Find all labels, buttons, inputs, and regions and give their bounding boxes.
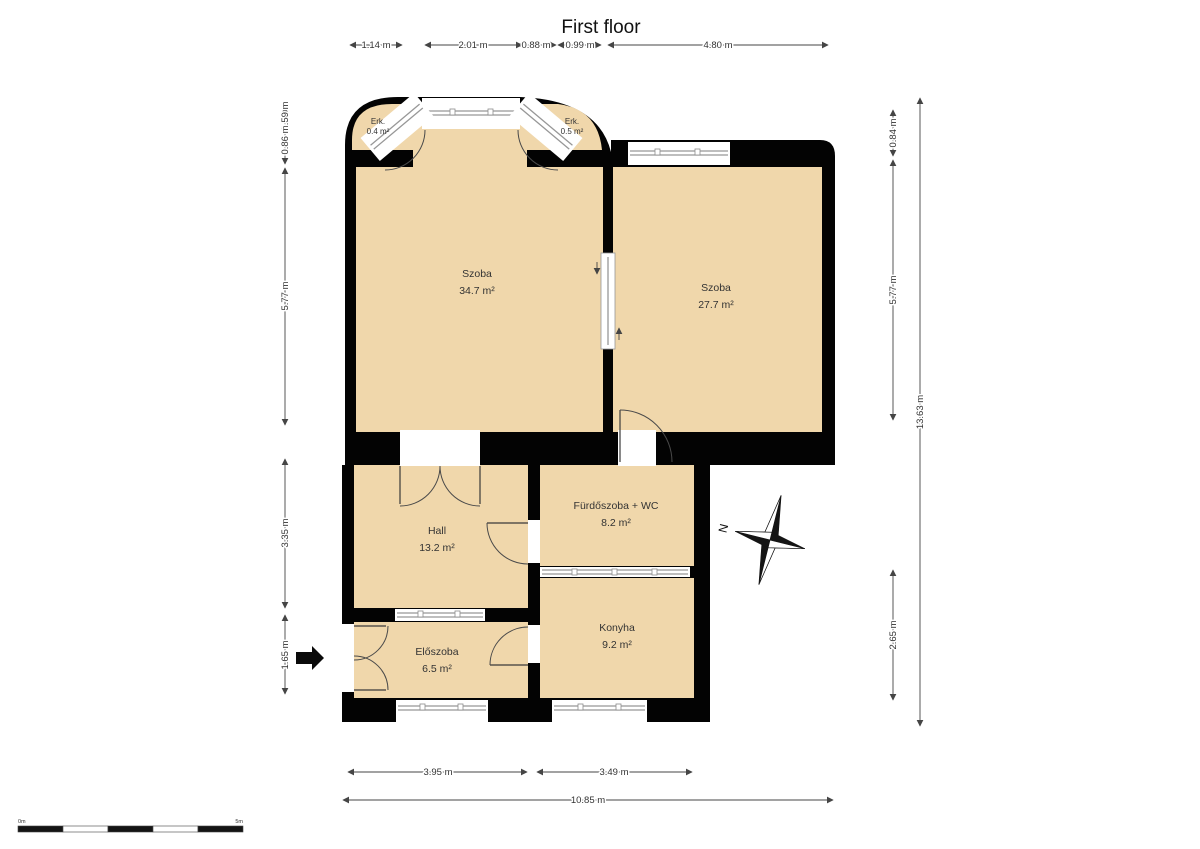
room-floor-szoba1-top (413, 128, 527, 173)
dim-bottom-2: 3.49 m (599, 767, 628, 778)
room-floor-bathroom (540, 465, 694, 566)
dimensions-right: 0.84 m 5.77 m 2.65 m 13.63 m (888, 98, 926, 726)
dim-bottom-total: 10.85 m (571, 795, 605, 806)
room-floor-kitchen (540, 578, 694, 698)
window-szoba2-top (628, 142, 730, 165)
dim-top-1: 1.14 m (361, 40, 390, 51)
entrance-arrow-icon (296, 646, 324, 670)
window-kitchen-bottom (552, 700, 647, 722)
dim-left-2: 0.86 m (280, 125, 291, 154)
door-hall-bathroom (528, 520, 540, 563)
dimensions-left: 0.59 m 0.86 m 5.77 m 3.35 m 1.65 m (280, 101, 291, 694)
dim-top-4: 0.99 m (565, 40, 594, 51)
dim-left-3: 5.77 m (280, 281, 291, 310)
room-area-balcony2: 0.5 m² (561, 127, 584, 136)
compass-north-label: N (716, 522, 732, 534)
dim-right-2: 5.77 m (888, 275, 899, 304)
dim-left-5: 1.65 m (280, 640, 291, 669)
room-name-kitchen: Konyha (599, 622, 635, 634)
dim-right-3: 2.65 m (888, 620, 899, 649)
dim-right-1: 0.84 m (888, 118, 899, 147)
entrance-door (342, 624, 354, 692)
room-name-entry: Előszoba (415, 646, 458, 658)
dim-top-3: 0.88 m (521, 40, 550, 51)
door-entry-kitchen (528, 625, 540, 663)
room-name-szoba1: Szoba (462, 268, 492, 280)
floor-plan: First floor (0, 0, 1200, 849)
room-area-hall: 13.2 m² (419, 542, 455, 554)
dimensions-top: 1.14 m 2.01 m 0.88 m 0.99 m 4.80 m (350, 40, 828, 51)
dim-left-4: 3.35 m (280, 518, 291, 547)
dim-top-2: 2.01 m (458, 40, 487, 51)
scale-end-label: 5m (235, 819, 243, 825)
room-area-szoba1: 34.7 m² (459, 285, 495, 297)
dimensions-bottom: 3.95 m 3.49 m 10.85 m (343, 767, 833, 806)
dim-bottom-1: 3.95 m (423, 767, 452, 778)
window-hall-entry (395, 609, 485, 621)
scale-start-label: 0m (18, 819, 26, 825)
window-entry-bottom (396, 700, 488, 722)
room-area-szoba2: 27.7 m² (698, 299, 734, 311)
room-floor-szoba1 (356, 167, 603, 432)
room-area-entry: 6.5 m² (422, 663, 452, 675)
page-title: First floor (561, 17, 641, 38)
dim-right-total: 13.63 m (915, 395, 926, 429)
room-area-kitchen: 9.2 m² (602, 639, 632, 651)
scale-bar: 0m 5m (18, 819, 243, 832)
room-name-hall: Hall (428, 525, 446, 537)
compass-icon: N (706, 482, 817, 593)
room-name-bathroom: Fürdőszoba + WC (574, 500, 659, 512)
room-name-balcony2: Erk. (565, 117, 579, 126)
room-area-bathroom: 8.2 m² (601, 517, 631, 529)
room-name-szoba2: Szoba (701, 282, 731, 294)
room-name-balcony1: Erk. (371, 117, 385, 126)
room-floor-entry (354, 622, 528, 698)
door-bathroom-szoba2 (618, 430, 656, 466)
dim-top-5: 4.80 m (703, 40, 732, 51)
room-area-balcony1: 0.4 m² (367, 127, 390, 136)
window-top-main (422, 98, 520, 129)
door-hall-szoba1 (400, 430, 480, 466)
